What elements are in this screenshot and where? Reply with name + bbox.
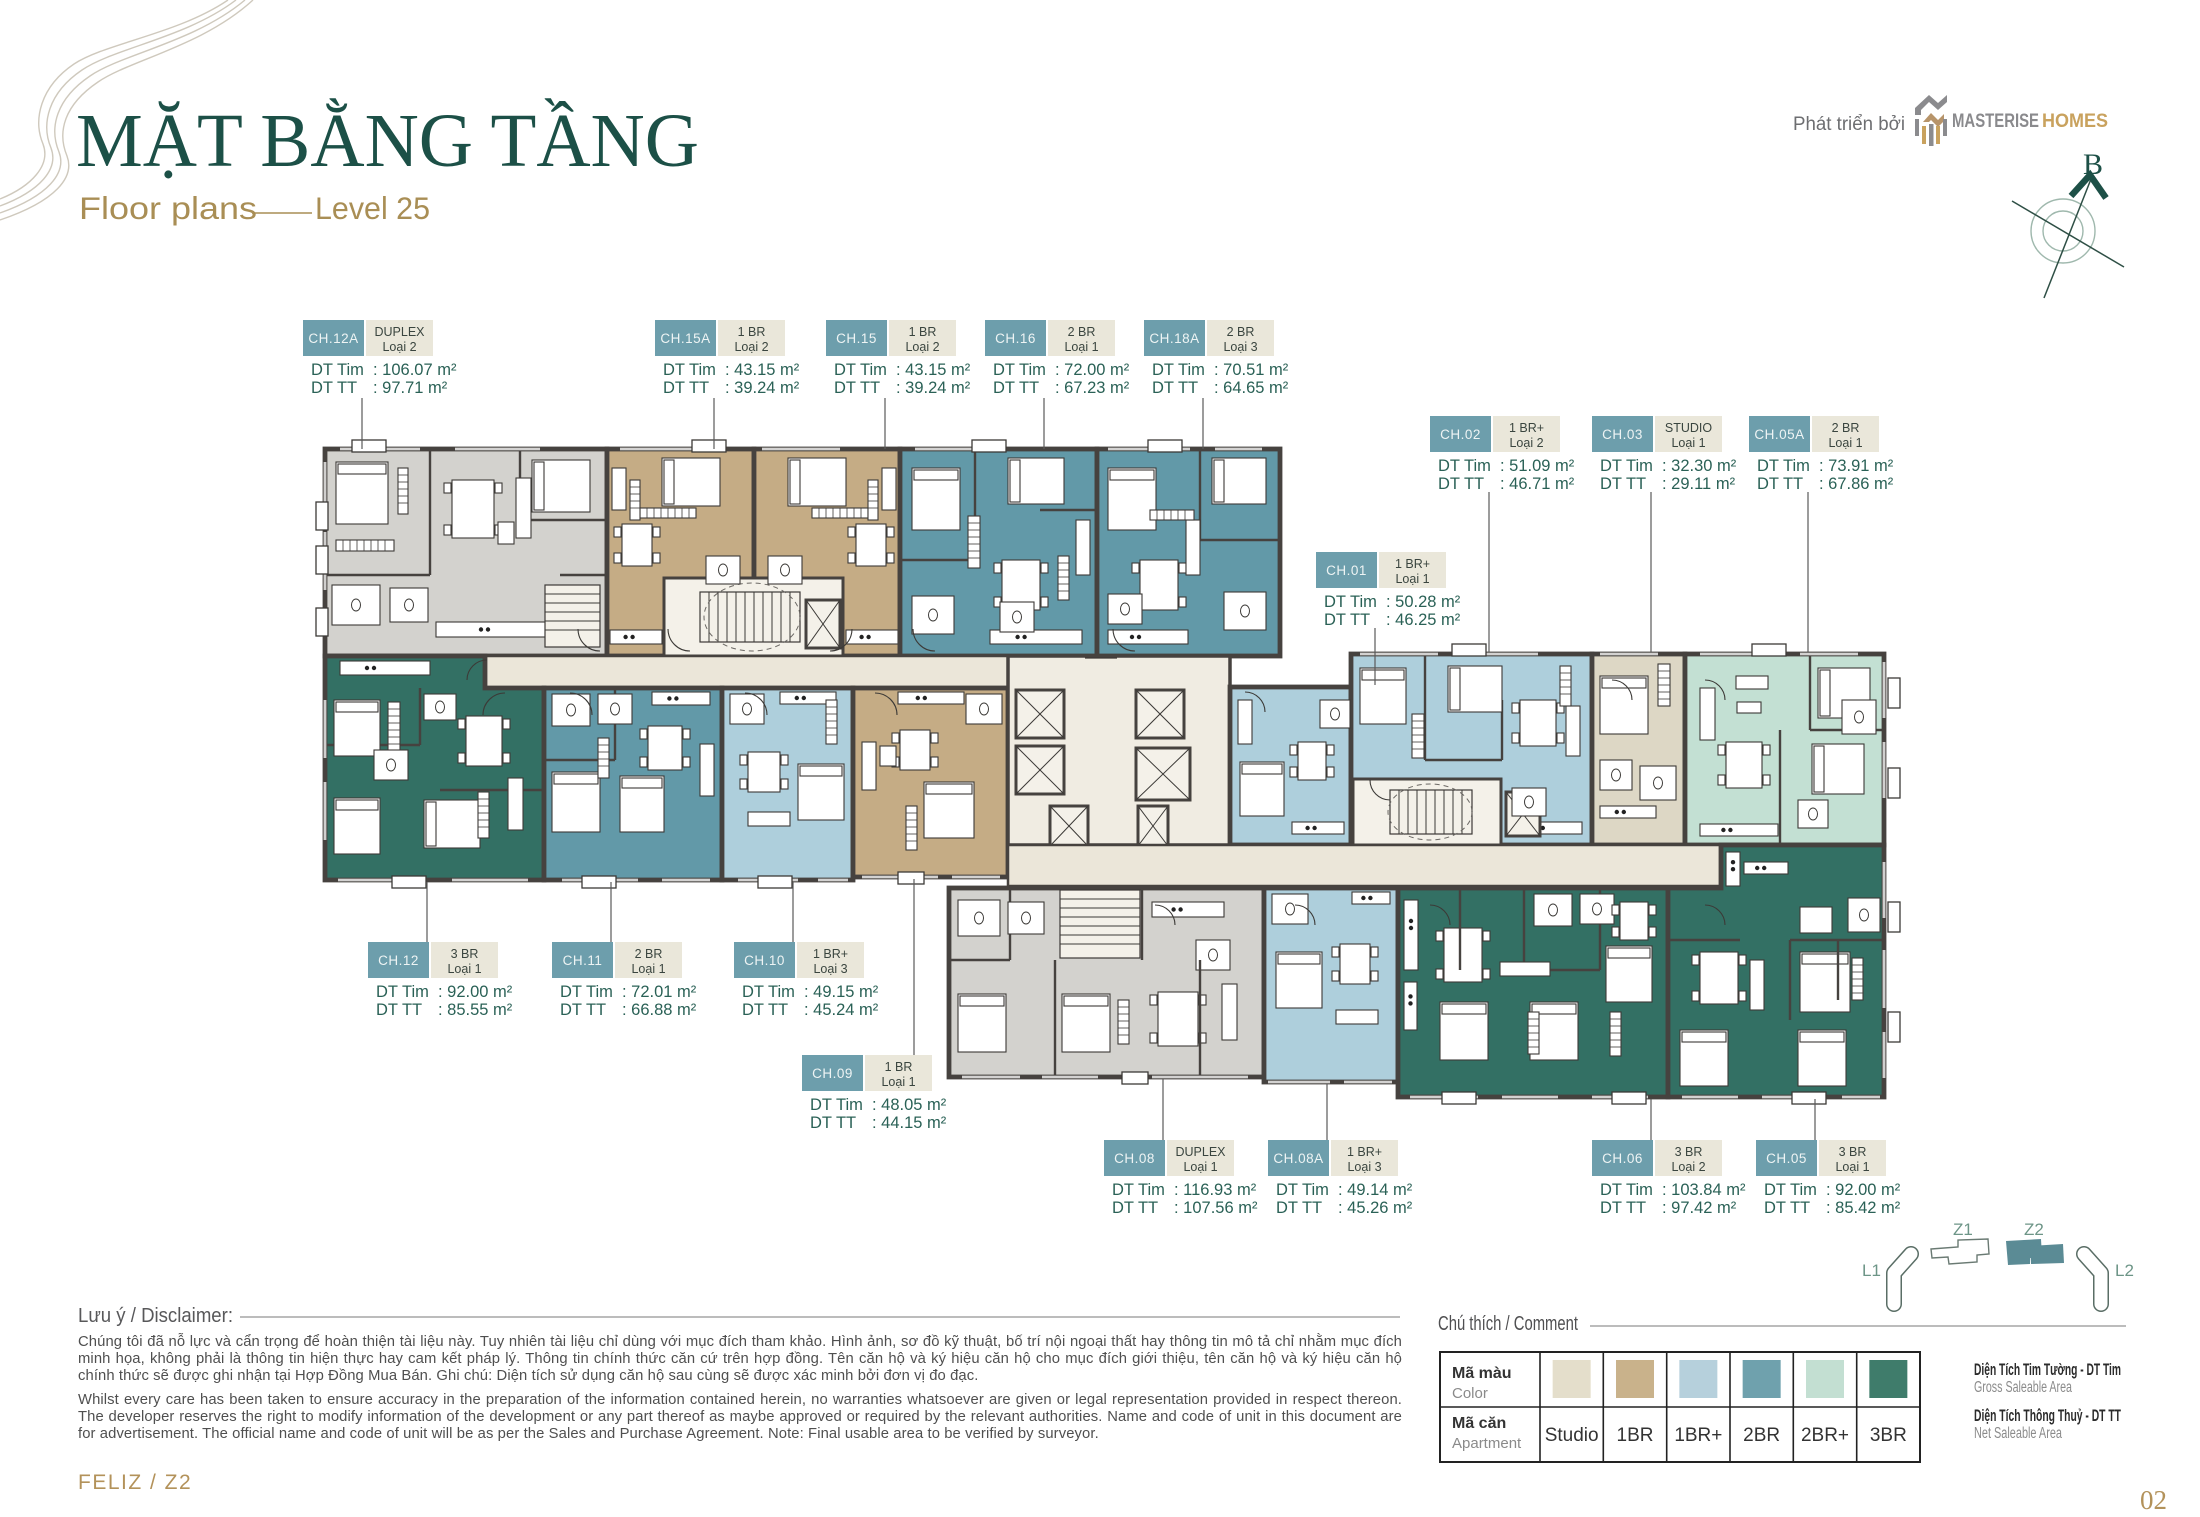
svg-text:CH.12: CH.12 [378, 953, 419, 968]
svg-text:Loại 2: Loại 2 [1671, 1160, 1705, 1174]
svg-text:DT Tim: DT Tim [1764, 1181, 1817, 1199]
svg-text:1 BR: 1 BR [738, 325, 766, 339]
svg-text:Loại 1: Loại 1 [447, 962, 481, 976]
svg-text:: 51.09 m²: : 51.09 m² [1500, 457, 1575, 475]
svg-text:1 BR+: 1 BR+ [1347, 1145, 1382, 1159]
svg-text:DT TT: DT TT [560, 1001, 606, 1019]
svg-text:MẶT BẰNG TẦNG: MẶT BẰNG TẦNG [76, 98, 699, 183]
svg-text:DT TT: DT TT [1600, 475, 1646, 493]
svg-text:2 BR: 2 BR [1068, 325, 1096, 339]
svg-text:L2: L2 [2115, 1261, 2134, 1280]
svg-text:: 44.15 m²: : 44.15 m² [872, 1114, 947, 1132]
svg-text:Diện Tích Thông Thuỷ - DT TT: Diện Tích Thông Thuỷ - DT TT [1974, 1406, 2121, 1425]
svg-text:DT Tim: DT Tim [560, 983, 613, 1001]
svg-text:Loại 2: Loại 2 [382, 340, 416, 354]
svg-text:: 106.07 m²: : 106.07 m² [373, 361, 457, 379]
svg-text:Loại 1: Loại 1 [1183, 1160, 1217, 1174]
svg-text:2 BR: 2 BR [635, 947, 663, 961]
svg-text:Loại 2: Loại 2 [734, 340, 768, 354]
svg-text:02: 02 [2140, 1485, 2167, 1515]
svg-text:DT Tim: DT Tim [810, 1096, 863, 1114]
svg-text:Studio: Studio [1545, 1425, 1599, 1446]
svg-text:Loại 1: Loại 1 [881, 1075, 915, 1089]
svg-text:B: B [2083, 148, 2103, 181]
svg-text:2 BR: 2 BR [1227, 325, 1255, 339]
svg-text:DT Tim: DT Tim [834, 361, 887, 379]
svg-text:: 67.23 m²: : 67.23 m² [1055, 379, 1130, 397]
svg-text:DT TT: DT TT [376, 1001, 422, 1019]
svg-text:Loại 3: Loại 3 [813, 962, 847, 976]
svg-text:: 67.86 m²: : 67.86 m² [1819, 475, 1894, 493]
svg-text:: 92.00 m²: : 92.00 m² [1826, 1181, 1901, 1199]
svg-text:Loại 3: Loại 3 [1347, 1160, 1381, 1174]
svg-text:CH.06: CH.06 [1602, 1151, 1643, 1166]
svg-text:DT TT: DT TT [810, 1114, 856, 1132]
svg-text:: 92.00 m²: : 92.00 m² [438, 983, 513, 1001]
svg-text:CH.10: CH.10 [744, 953, 785, 968]
svg-text:: 49.15 m²: : 49.15 m² [804, 983, 879, 1001]
svg-text:2BR+: 2BR+ [1801, 1425, 1849, 1446]
svg-text:: 66.88 m²: : 66.88 m² [622, 1001, 697, 1019]
svg-text:: 85.42 m²: : 85.42 m² [1826, 1199, 1901, 1217]
svg-text:CH.05: CH.05 [1766, 1151, 1807, 1166]
svg-text:: 29.11 m²: : 29.11 m² [1662, 475, 1736, 493]
svg-text:: 85.55 m²: : 85.55 m² [438, 1001, 513, 1019]
svg-text:: 72.00 m²: : 72.00 m² [1055, 361, 1130, 379]
svg-text:Z2: Z2 [2024, 1220, 2044, 1239]
svg-text:STUDIO: STUDIO [1665, 421, 1713, 435]
svg-text:DT Tim: DT Tim [376, 983, 429, 1001]
svg-text:CH.18A: CH.18A [1149, 331, 1199, 346]
svg-text:1 BR: 1 BR [909, 325, 937, 339]
svg-text:CH.11: CH.11 [563, 953, 603, 968]
svg-text:DT TT: DT TT [1757, 475, 1803, 493]
svg-text:Loại 2: Loại 2 [1509, 436, 1543, 450]
svg-text:MASTERISE: MASTERISE [1952, 111, 2039, 132]
svg-text:CH.09: CH.09 [812, 1066, 853, 1081]
svg-text:Chú thích / Comment: Chú thích / Comment [1438, 1313, 1578, 1335]
svg-text:: 43.15 m²: : 43.15 m² [896, 361, 971, 379]
svg-text:DT TT: DT TT [1600, 1199, 1646, 1217]
svg-text:Loại 1: Loại 1 [631, 962, 665, 976]
svg-text:3 BR: 3 BR [1839, 1145, 1867, 1159]
svg-text:: 72.01 m²: : 72.01 m² [622, 983, 697, 1001]
svg-text:Loại 2: Loại 2 [905, 340, 939, 354]
svg-text:CH.08: CH.08 [1114, 1151, 1155, 1166]
svg-text:: 64.65 m²: : 64.65 m² [1214, 379, 1289, 397]
svg-text:: 50.28 m²: : 50.28 m² [1386, 593, 1461, 611]
svg-text:CH.15: CH.15 [836, 331, 877, 346]
svg-text:DT Tim: DT Tim [1600, 457, 1653, 475]
svg-text:Net Saleable Area: Net Saleable Area [1974, 1425, 2062, 1442]
svg-text:DT TT: DT TT [1438, 475, 1484, 493]
svg-text:: 45.26 m²: : 45.26 m² [1338, 1199, 1413, 1217]
svg-text:DT TT: DT TT [993, 379, 1039, 397]
svg-text:Level 25: Level 25 [315, 190, 430, 226]
svg-text:: 116.93 m²: : 116.93 m² [1174, 1181, 1257, 1199]
svg-text:2BR: 2BR [1743, 1425, 1780, 1446]
svg-text:: 39.24 m²: : 39.24 m² [896, 379, 971, 397]
svg-text:Loại 1: Loại 1 [1828, 436, 1862, 450]
svg-text:Z1: Z1 [1953, 1220, 1973, 1239]
svg-text:DT Tim: DT Tim [1438, 457, 1491, 475]
svg-text:CH.01: CH.01 [1326, 563, 1367, 578]
svg-text:: 103.84 m²: : 103.84 m² [1662, 1181, 1746, 1199]
svg-text:CH.15A: CH.15A [660, 331, 710, 346]
svg-text:: 49.14 m²: : 49.14 m² [1338, 1181, 1413, 1199]
svg-text:Mã màu: Mã màu [1452, 1365, 1512, 1382]
svg-text:HOMES: HOMES [2042, 111, 2108, 132]
svg-text:DT Tim: DT Tim [993, 361, 1046, 379]
svg-text:: 46.25 m²: : 46.25 m² [1386, 611, 1461, 629]
svg-text:DUPLEX: DUPLEX [374, 325, 425, 339]
svg-text:DT Tim: DT Tim [311, 361, 364, 379]
svg-text:: 97.42 m²: : 97.42 m² [1662, 1199, 1737, 1217]
svg-text:DT Tim: DT Tim [1276, 1181, 1329, 1199]
svg-text:Loại 1: Loại 1 [1395, 572, 1429, 586]
svg-text:DT Tim: DT Tim [663, 361, 716, 379]
svg-text:Apartment: Apartment [1452, 1435, 1522, 1452]
svg-text:: 32.30 m²: : 32.30 m² [1662, 457, 1737, 475]
svg-text:: 39.24 m²: : 39.24 m² [725, 379, 800, 397]
svg-text:DT TT: DT TT [1112, 1199, 1158, 1217]
svg-text:: 45.24 m²: : 45.24 m² [804, 1001, 879, 1019]
svg-text:1 BR: 1 BR [885, 1060, 913, 1074]
svg-text:DT TT: DT TT [1152, 379, 1198, 397]
svg-text:Mã căn: Mã căn [1452, 1415, 1506, 1432]
svg-text:Color: Color [1452, 1385, 1488, 1402]
svg-text:DT Tim: DT Tim [1757, 457, 1810, 475]
svg-text:2 BR: 2 BR [1832, 421, 1860, 435]
svg-text:DT Tim: DT Tim [1324, 593, 1377, 611]
svg-text:DT Tim: DT Tim [742, 983, 795, 1001]
svg-text:L1: L1 [1862, 1261, 1881, 1280]
svg-text:DT Tim: DT Tim [1152, 361, 1205, 379]
svg-text:: 73.91 m²: : 73.91 m² [1819, 457, 1894, 475]
svg-text:1 BR+: 1 BR+ [1395, 557, 1430, 571]
svg-text:DT TT: DT TT [1324, 611, 1370, 629]
svg-text:Loại 1: Loại 1 [1064, 340, 1098, 354]
svg-text:CH.02: CH.02 [1440, 427, 1481, 442]
svg-text:DT TT: DT TT [1276, 1199, 1322, 1217]
svg-text:CH.16: CH.16 [995, 331, 1036, 346]
svg-text:CH.08A: CH.08A [1273, 1151, 1323, 1166]
svg-text:1BR+: 1BR+ [1674, 1425, 1722, 1446]
svg-text:DT Tim: DT Tim [1600, 1181, 1653, 1199]
svg-text:Diện Tích Tim Tường - DT Tim: Diện Tích Tim Tường - DT Tim [1974, 1360, 2121, 1379]
svg-text:: 70.51 m²: : 70.51 m² [1214, 361, 1289, 379]
svg-text:Loại 1: Loại 1 [1835, 1160, 1869, 1174]
svg-text:3BR: 3BR [1870, 1425, 1907, 1446]
svg-text:DT TT: DT TT [1764, 1199, 1810, 1217]
svg-text:DUPLEX: DUPLEX [1175, 1145, 1226, 1159]
svg-text:: 43.15 m²: : 43.15 m² [725, 361, 800, 379]
svg-text:Floor plans: Floor plans [79, 190, 257, 226]
svg-text:Loại 1: Loại 1 [1671, 436, 1705, 450]
svg-text:DT TT: DT TT [834, 379, 880, 397]
svg-text:DT TT: DT TT [742, 1001, 788, 1019]
svg-text:DT TT: DT TT [311, 379, 357, 397]
svg-text:DT TT: DT TT [663, 379, 709, 397]
svg-text:3 BR: 3 BR [1675, 1145, 1703, 1159]
svg-text:Gross Saleable Area: Gross Saleable Area [1974, 1379, 2072, 1396]
svg-text:1BR: 1BR [1617, 1425, 1654, 1446]
svg-text:Phát triển bởi: Phát triển bởi [1793, 114, 1905, 135]
svg-text:CH.12A: CH.12A [308, 331, 358, 346]
svg-text:1 BR+: 1 BR+ [813, 947, 848, 961]
svg-text:DT Tim: DT Tim [1112, 1181, 1165, 1199]
svg-text:Loại 3: Loại 3 [1223, 340, 1257, 354]
svg-text:1 BR+: 1 BR+ [1509, 421, 1544, 435]
svg-text:: 48.05 m²: : 48.05 m² [872, 1096, 947, 1114]
svg-text:CH.03: CH.03 [1602, 427, 1643, 442]
svg-text:CH.05A: CH.05A [1754, 427, 1804, 442]
svg-text:: 97.71 m²: : 97.71 m² [373, 379, 448, 397]
svg-text:Lưu ý / Disclaimer:: Lưu ý / Disclaimer: [78, 1305, 233, 1327]
svg-text:: 107.56 m²: : 107.56 m² [1174, 1199, 1258, 1217]
svg-text:3 BR: 3 BR [451, 947, 479, 961]
svg-text:FELIZ / Z2: FELIZ / Z2 [78, 1471, 192, 1494]
svg-text:: 46.71 m²: : 46.71 m² [1500, 475, 1575, 493]
